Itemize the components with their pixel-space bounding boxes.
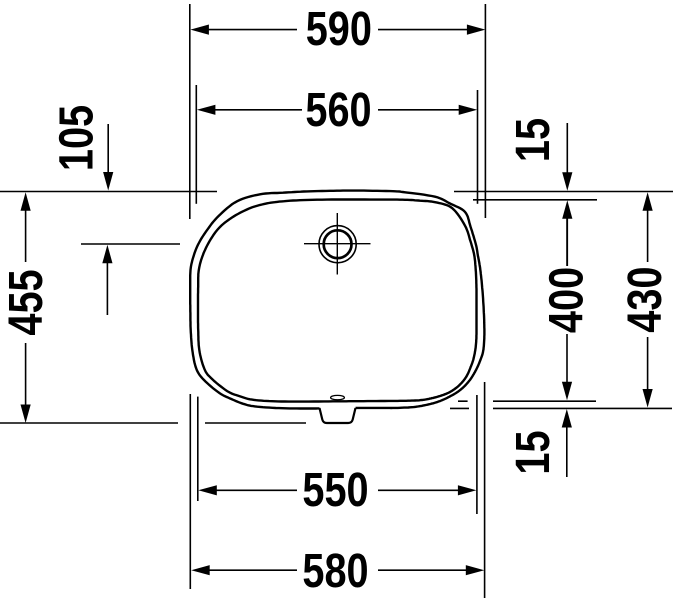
svg-text:15: 15 — [506, 430, 559, 474]
svg-text:550: 550 — [302, 463, 368, 516]
svg-text:455: 455 — [0, 269, 53, 335]
svg-text:430: 430 — [618, 266, 671, 332]
svg-text:105: 105 — [50, 105, 103, 171]
svg-text:560: 560 — [305, 83, 371, 136]
svg-text:400: 400 — [540, 267, 593, 333]
svg-text:580: 580 — [302, 544, 368, 597]
svg-text:15: 15 — [506, 118, 559, 162]
svg-text:590: 590 — [306, 3, 372, 56]
